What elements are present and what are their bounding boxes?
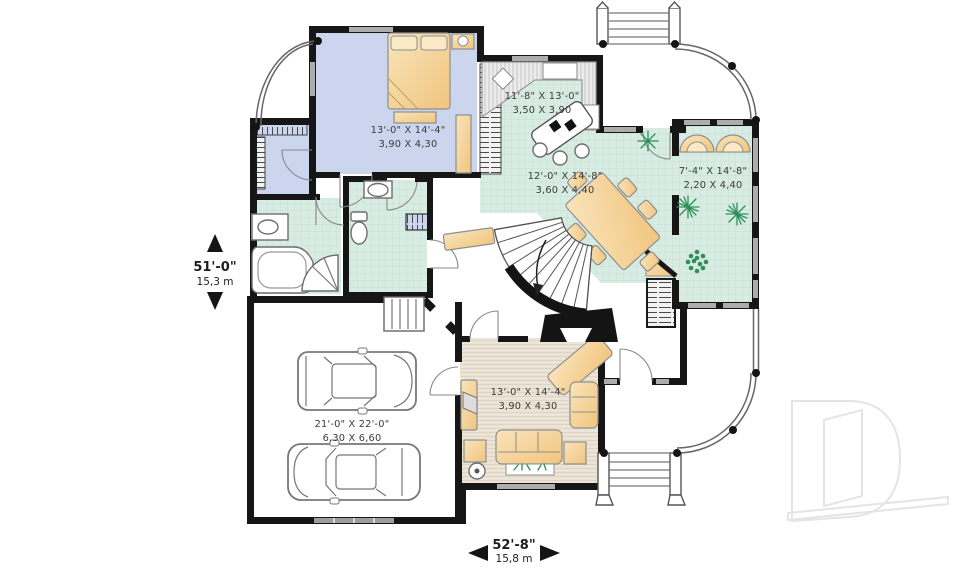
plant-icon (638, 131, 658, 151)
dresser-icon (456, 115, 471, 173)
arrow-left-icon (468, 545, 488, 561)
sink-icon (258, 220, 278, 234)
living-dim-imperial: 13'-0" X 14'-4" (491, 387, 566, 398)
plant-icon (726, 203, 748, 225)
tv-cabinet-icon (461, 380, 477, 430)
front-dimension-metric: 15,8 m (496, 553, 533, 565)
arrow-right-icon (540, 545, 560, 561)
linen-closet (406, 214, 430, 230)
stool-icon (533, 143, 547, 157)
dining-dim-metric: 3,60 X 4,40 (536, 185, 595, 196)
plant-icon (677, 196, 699, 218)
car-icon (298, 348, 416, 414)
side-dimension-imperial: 51'-0" (193, 260, 236, 275)
sunroom-dim-imperial: 7'-4" X 14'-8" (679, 166, 747, 177)
porch-stairs (596, 453, 685, 505)
armchair-icon (570, 382, 598, 428)
overall-dimension-front: 52'-8" 15,8 m (468, 538, 560, 565)
side-dimension-metric: 15,3 m (197, 276, 234, 288)
sunroom-dim-metric: 2,20 X 4,40 (684, 180, 743, 191)
overall-dimension-side: 51'-0" 15,3 m (193, 234, 236, 310)
floor-plan-page: 13'-0" X 14'-4" 3,90 X 4,30 11'-8" X 13'… (0, 0, 960, 569)
garage-dim-metric: 6,30 X 6,60 (323, 433, 382, 444)
garage-door (314, 518, 394, 523)
console-table-icon (443, 228, 495, 251)
kitchen-dim-imperial: 11'-8" X 13'-0" (505, 91, 580, 102)
bed-icon (388, 33, 450, 109)
living-dim-metric: 3,90 X 4,30 (499, 401, 558, 412)
stool-icon (553, 151, 567, 165)
arrow-down-icon (207, 292, 223, 310)
garage-steps (384, 297, 424, 331)
porch-top-right (597, 2, 760, 124)
front-dimension-imperial: 52'-8" (492, 538, 535, 553)
garage-dim-imperial: 21'-0" X 22'-0" (315, 419, 390, 430)
car-icon (288, 440, 420, 504)
side-table-icon (564, 442, 586, 464)
kitchen-dim-metric: 3,50 X 3,90 (513, 105, 572, 116)
sink-icon (368, 184, 388, 197)
bedroom-dim-metric: 3,90 X 4,30 (379, 139, 438, 150)
watermark-logo (788, 401, 948, 521)
sofa-icon (496, 430, 562, 475)
toilet-icon (351, 212, 367, 244)
floor-plan-canvas: 13'-0" X 14'-4" 3,90 X 4,30 11'-8" X 13'… (0, 0, 960, 569)
nightstand-icon (452, 34, 474, 49)
bedroom-dim-imperial: 13'-0" X 14'-4" (371, 125, 446, 136)
arrow-up-icon (207, 234, 223, 252)
foyer-closet (647, 279, 675, 327)
stove-icon (543, 63, 577, 79)
porch-stairs (597, 2, 680, 44)
side-table-icon (464, 440, 486, 462)
stool-icon (575, 144, 589, 158)
bench-icon (394, 112, 436, 123)
dining-dim-imperial: 12'-0" X 14'-8" (528, 171, 603, 182)
